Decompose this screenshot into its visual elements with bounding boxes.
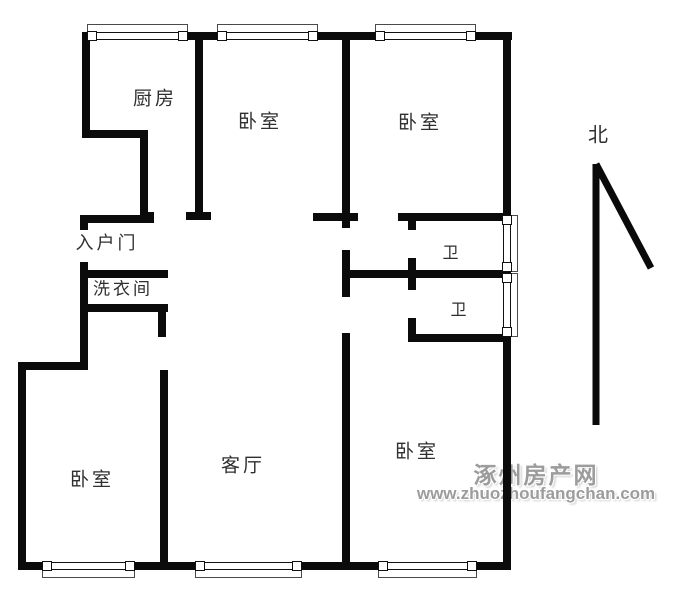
window-bedroom-bottom-right [383, 562, 472, 570]
room-label-bedroom-top-right: 卧室 [398, 108, 442, 135]
room-label-kitchen: 厨房 [133, 84, 177, 111]
window-bath-1-jamb-1 [502, 262, 512, 272]
window-kitchen [92, 32, 183, 40]
window-bath-2-jamb-0 [502, 273, 512, 283]
room-label-laundry: 洗衣间 [93, 275, 153, 300]
window-kitchen-jamb-0 [87, 31, 97, 41]
window-bedroom-top-right [380, 32, 471, 40]
window-living-room-jamb-1 [292, 561, 302, 571]
window-bedroom-bottom-left-jamb-1 [125, 561, 135, 571]
window-bedroom-bottom-right-jamb-1 [467, 561, 477, 571]
window-bedroom-top-right-jamb-0 [375, 31, 385, 41]
window-bedroom-bottom-left [47, 562, 130, 570]
window-bath-1 [503, 220, 511, 267]
window-bath-2 [503, 278, 511, 332]
window-living-room [200, 562, 297, 570]
window-bedroom-bottom-right-jamb-0 [378, 561, 388, 571]
window-living-room-jamb-0 [195, 561, 205, 571]
window-bedroom-top-right-jamb-1 [466, 31, 476, 41]
window-bedroom-top-middle-jamb-1 [308, 31, 318, 41]
floor-plan: 涿州房产网www.zhuozhoufangchan.com厨房卧室卧室入户门洗衣… [0, 0, 690, 600]
window-bedroom-bottom-left-jamb-0 [42, 561, 52, 571]
room-label-bedroom-bottom-left: 卧室 [70, 465, 114, 492]
room-label-living-room: 客厅 [221, 451, 265, 478]
room-label-bedroom-top-middle: 卧室 [238, 107, 282, 134]
window-bath-1-jamb-0 [502, 215, 512, 225]
window-bedroom-top-middle [222, 32, 313, 40]
window-kitchen-jamb-1 [178, 31, 188, 41]
room-label-bath-1: 卫 [442, 239, 461, 263]
window-bedroom-top-middle-jamb-0 [217, 31, 227, 41]
room-label-bedroom-bottom-right: 卧室 [395, 437, 439, 464]
north-label: 北 [588, 119, 608, 148]
room-label-bath-2: 卫 [450, 296, 469, 320]
room-label-entrance: 入户门 [76, 229, 139, 255]
window-bath-2-jamb-1 [502, 327, 512, 337]
north-arrow-icon [0, 0, 690, 600]
